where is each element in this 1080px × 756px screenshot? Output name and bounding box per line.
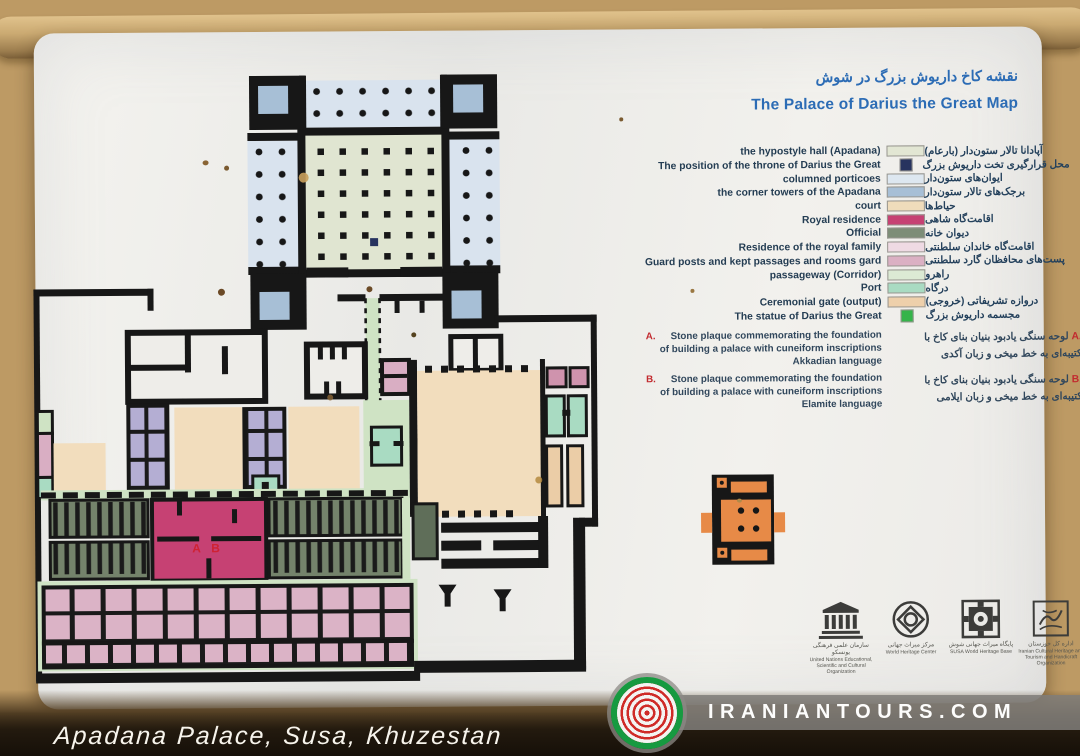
note-b-label-fa: .B [1072, 375, 1080, 386]
iran-heritage-org-logo: اداره کل خوزستان Iranian Cultural Herita… [1018, 598, 1080, 673]
dirt-speck [619, 117, 623, 121]
susa-emblem-icon [961, 599, 1001, 639]
legend-label-fa: محل قرارگیری تخت داریوش بزرگ [925, 158, 1077, 171]
notes: A. Stone plaque commemorating the founda… [646, 328, 1080, 418]
map-marker-a: A [192, 541, 201, 555]
legend-swatch [900, 309, 913, 322]
court-middle-1 [174, 407, 243, 492]
legend-row: The statue of Darius the Great مجسمه دار… [592, 307, 1078, 324]
photo-scene: A B [0, 0, 1080, 756]
legend-swatch [887, 241, 925, 252]
court-middle-2 [288, 406, 360, 493]
legend-label-en: Guard posts and kept passages and rooms … [591, 255, 887, 268]
legend-label-fa: ایوان‌های ستون‌دار [925, 171, 1077, 184]
rooms-lavender-1 [128, 406, 168, 491]
legend-label-fa: پست‌های محافظان گارد سلطنتی [925, 254, 1077, 267]
apadana-complex [247, 74, 501, 330]
ceremonial-gate-room [568, 446, 583, 506]
legend-label-fa: آپادانا تالار ستون‌دار (بارعام) [924, 144, 1076, 157]
legend-swatch [887, 283, 925, 294]
legend-label-fa: حیاط‌ها [925, 199, 1077, 212]
note-a-english: A. Stone plaque commemorating the founda… [646, 330, 882, 370]
legend-label-en: Official [591, 228, 887, 241]
susa-heritage-base-logo: پایگاه میراث جهانی شوش SUSA World Herita… [948, 599, 1015, 674]
sign-panel: A B [34, 26, 1047, 709]
legend-swatch [887, 214, 925, 225]
legend-swatch [886, 146, 924, 157]
legend-swatch [899, 158, 912, 171]
photo-caption: Apadana Palace, Susa, Khuzestan [53, 722, 503, 751]
legend-swatch [888, 296, 926, 307]
east-portico [445, 139, 500, 267]
legend-swatch [887, 228, 925, 239]
note-b-english: B. Stone plaque commemorating the founda… [646, 373, 882, 413]
legend-label-fa: برجک‌های تالار ستون‌دار [925, 185, 1077, 198]
legend-label-en: Royal residence [591, 214, 887, 227]
legend-label-fa: درگاه [925, 281, 1077, 294]
legend-swatch [887, 173, 925, 184]
legend-label-en: Port [591, 283, 887, 296]
legend-label-fa: دیوان خانه [925, 226, 1077, 239]
legend-label-en: The statue of Darius the Great [592, 310, 888, 323]
legend-label-en: passageway (Corridor) [591, 269, 887, 282]
legend-swatch [887, 200, 925, 211]
ceremonial-gate-room [547, 446, 562, 506]
legend-label-fa: اقامت‌گاه خاندان سلطنتی [925, 240, 1077, 253]
legend-label-en: columned porticoes [591, 173, 887, 186]
legend-swatch [887, 269, 925, 280]
throne-position [370, 238, 378, 246]
court-west [54, 443, 106, 491]
legend-label-en: Residence of the royal family [591, 242, 887, 255]
legend-swatch [887, 187, 925, 198]
palace-lower-complex: A B [33, 286, 599, 684]
legend-label-en: the corner towers of the Apadana [591, 187, 887, 200]
iran-org-emblem-icon [1031, 598, 1071, 638]
rooms-center [307, 344, 365, 396]
dirt-speck [690, 289, 694, 293]
entrance-court [413, 503, 599, 673]
note-b: B. Stone plaque commemorating the founda… [646, 372, 1080, 413]
title-english: The Palace of Darius the Great Map [498, 95, 1018, 117]
watermark-bar: IRANIANTOURS.COM [638, 695, 1080, 730]
title-persian: نقشه کاخ داریوش بزرگ در شوش [498, 69, 1018, 89]
dirt-speck [203, 160, 209, 165]
legend-label-en: court [591, 201, 887, 214]
note-a: A. Stone plaque commemorating the founda… [646, 328, 1080, 369]
note-a-label: A. [646, 331, 656, 344]
map-marker-b: B [211, 541, 220, 555]
north-portico [305, 80, 442, 128]
legend-label-fa: دروازه تشریفاتی (خروجی) [926, 295, 1078, 308]
court-east [409, 359, 543, 518]
west-portico [247, 141, 302, 269]
legend-label-en: the hypostyle hall (Apadana) [590, 146, 886, 159]
note-b-persian: .B لوحه سنگی یادبود بنیان بنای کاخ با کت… [900, 372, 1080, 412]
legend-label-fa: اقامت‌گاه شاهی [925, 213, 1077, 226]
legend: the hypostyle hall (Apadana) آپادانا تال… [590, 143, 1077, 324]
east-edge-rooms [540, 359, 589, 525]
legend-swatch [887, 255, 925, 266]
watermark-text: IRANIANTOURS.COM [708, 701, 1017, 723]
note-b-label: B. [646, 375, 656, 388]
dirt-speck [737, 499, 742, 503]
port-room [546, 396, 564, 436]
unesco-logo: سازمان علمی فرهنگی یونسکو United Nations… [808, 600, 875, 675]
note-a-label-fa: .A [1071, 331, 1080, 342]
iraniantours-logo-icon [611, 677, 683, 749]
hypostyle-hall [301, 131, 446, 274]
unesco-temple-icon [817, 600, 865, 640]
legend-label-fa: راهرو [925, 267, 1077, 280]
world-heritage-center-logo: مرکز میراث جهانی World Heritage Center [878, 599, 945, 674]
royal-residence: A B [152, 499, 267, 581]
legend-label-en: The position of the throne of Darius the… [591, 160, 887, 173]
note-a-persian: .A لوحه سنگی یادبود بنیان بنای کاخ با کت… [900, 328, 1080, 368]
organization-logos: سازمان علمی فرهنگی یونسکو United Nations… [808, 598, 1080, 675]
legend-label-en: Ceremonial gate (output) [592, 296, 888, 309]
world-heritage-icon [891, 599, 931, 639]
guard-rooms-grid [37, 579, 418, 672]
legend-label-fa: مجسمه داریوش بزرگ [926, 308, 1078, 321]
port-room [568, 396, 586, 436]
gate-of-darius [701, 474, 786, 565]
